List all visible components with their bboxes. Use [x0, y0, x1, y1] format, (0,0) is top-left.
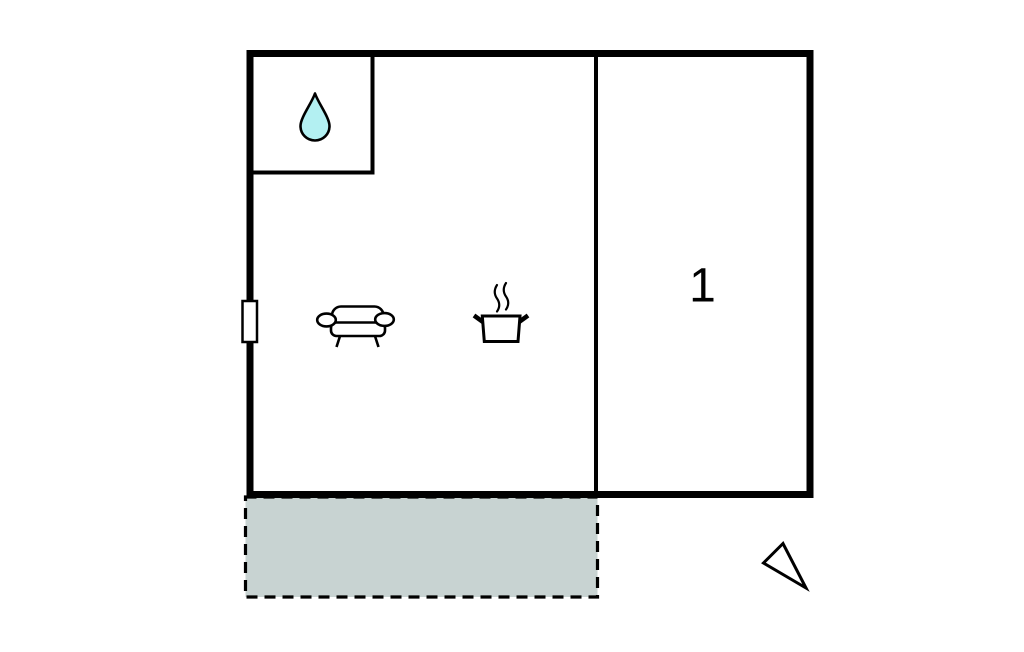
water-drop-shape: [301, 94, 330, 141]
outer-wall: [250, 54, 810, 495]
pot-body: [482, 316, 520, 342]
water-drop-icon: [301, 94, 330, 141]
door-window: [243, 301, 258, 342]
sofa-arm-right: [375, 313, 394, 326]
bedroom-label: 1: [689, 260, 716, 313]
floorplan-canvas: 1: [0, 0, 1024, 652]
sofa-arm-left: [317, 314, 336, 327]
steam-line-right: [504, 283, 509, 310]
steam-line-left: [495, 285, 500, 312]
cooking-pot-icon: [474, 283, 528, 342]
sofa-icon: [317, 307, 394, 348]
north-arrow-icon: [764, 544, 807, 589]
terrace-area: [246, 497, 598, 597]
